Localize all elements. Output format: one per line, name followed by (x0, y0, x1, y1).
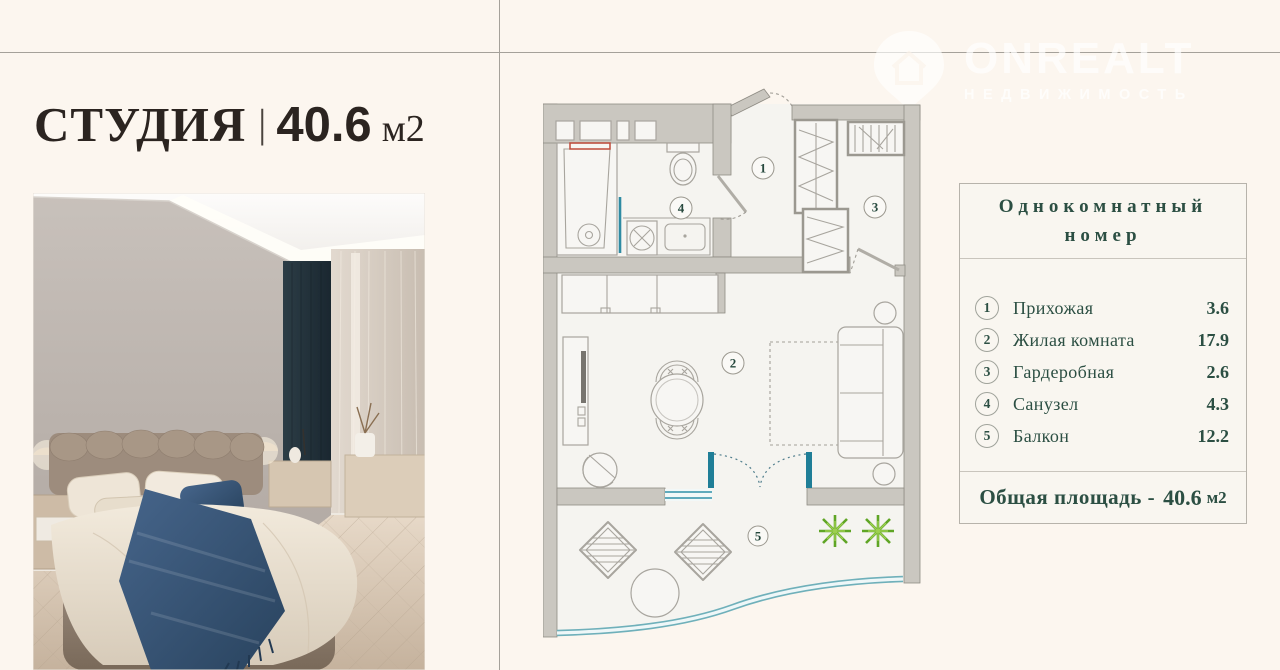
room-area-value: 3.6 (1207, 298, 1230, 319)
door-jamb-right (806, 452, 812, 488)
svg-text:3: 3 (872, 200, 879, 215)
room-label: Прихожая (1013, 298, 1093, 319)
title-area-unit: м2 (382, 108, 425, 150)
total-area-value: 40.6 (1163, 485, 1202, 511)
closet-wardrobe (803, 209, 848, 272)
room-row-1: 1 Прихожая 3.6 (975, 292, 1229, 324)
title-name: СТУДИЯ (34, 97, 246, 152)
onrealt-tagline: НЕДВИЖИМОСТЬ (964, 87, 1194, 103)
room-number-circle-3: 3 (864, 196, 886, 218)
room-row-4: 4 Санузел 4.3 (975, 388, 1229, 420)
room-number-badge: 1 (975, 296, 999, 320)
vertical-divider-line (499, 0, 500, 670)
panel-title: Однокомнатный номер (960, 184, 1246, 259)
room-area-value: 4.3 (1207, 394, 1230, 415)
closet-top-right (848, 122, 904, 155)
studio-title: СТУДИЯ|40.6м2 (34, 96, 425, 153)
svg-text:4: 4 (678, 201, 685, 216)
plant-1 (819, 515, 851, 547)
closet-hall (795, 120, 837, 213)
poster-root: СТУДИЯ|40.6м2 ONREALT НЕДВИЖИМОСТЬ (0, 0, 1280, 670)
title-area-value: 40.6 (276, 98, 371, 152)
svg-text:5: 5 (755, 529, 762, 544)
svg-text:1: 1 (760, 161, 767, 176)
room-number-circle-5: 5 (748, 526, 768, 546)
room-row-2: 2 Жилая комната 17.9 (975, 324, 1229, 356)
wall-niches (556, 121, 656, 140)
room-area-value: 12.2 (1198, 426, 1230, 447)
room-number-badge: 5 (975, 424, 999, 448)
bedroom-photo (33, 193, 425, 670)
room-row-5: 5 Балкон 12.2 (975, 420, 1229, 452)
total-area-label: Общая площадь - (979, 485, 1155, 510)
side-table-top (874, 302, 896, 324)
room-label: Санузел (1013, 394, 1079, 415)
room-label: Балкон (1013, 426, 1069, 447)
room-row-3: 3 Гардеробная 2.6 (975, 356, 1229, 388)
onrealt-brand-text: ONREALT (964, 37, 1194, 81)
room-area-value: 17.9 (1198, 330, 1230, 351)
side-table-bottom (873, 463, 895, 485)
room-number-badge: 3 (975, 360, 999, 384)
sofa (838, 302, 903, 485)
total-area: Общая площадь - 40.6 м2 (960, 471, 1246, 523)
room-number-circle-2: 2 (722, 352, 744, 374)
builtin-wardrobe (562, 275, 718, 313)
room-number-badge: 2 (975, 328, 999, 352)
panel-title-line2: номер (1064, 221, 1141, 250)
balcony-table (631, 569, 679, 617)
panel-title-line1: Однокомнатный (999, 192, 1207, 221)
tv-console (563, 337, 588, 445)
floor-plan: .wall{fill:#cac7c0;stroke:#8f8c84;stroke… (543, 85, 943, 645)
room-number-badge: 4 (975, 392, 999, 416)
room-label: Гардеробная (1013, 362, 1114, 383)
room-label: Жилая комната (1013, 330, 1135, 351)
room-number-circle-4: 4 (670, 197, 692, 219)
room-area-value: 2.6 (1207, 362, 1230, 383)
total-area-unit: м2 (1207, 488, 1227, 508)
title-separator: | (246, 101, 276, 146)
armchair (583, 453, 617, 487)
info-panel: Однокомнатный номер 1 Прихожая 3.6 2 Жил… (959, 183, 1247, 524)
door-jamb-left (708, 452, 714, 488)
plant-2 (862, 515, 894, 547)
room-number-circle-1: 1 (752, 157, 774, 179)
svg-text:2: 2 (730, 356, 737, 371)
room-list: 1 Прихожая 3.6 2 Жилая комната 17.9 3 Га… (960, 259, 1246, 452)
